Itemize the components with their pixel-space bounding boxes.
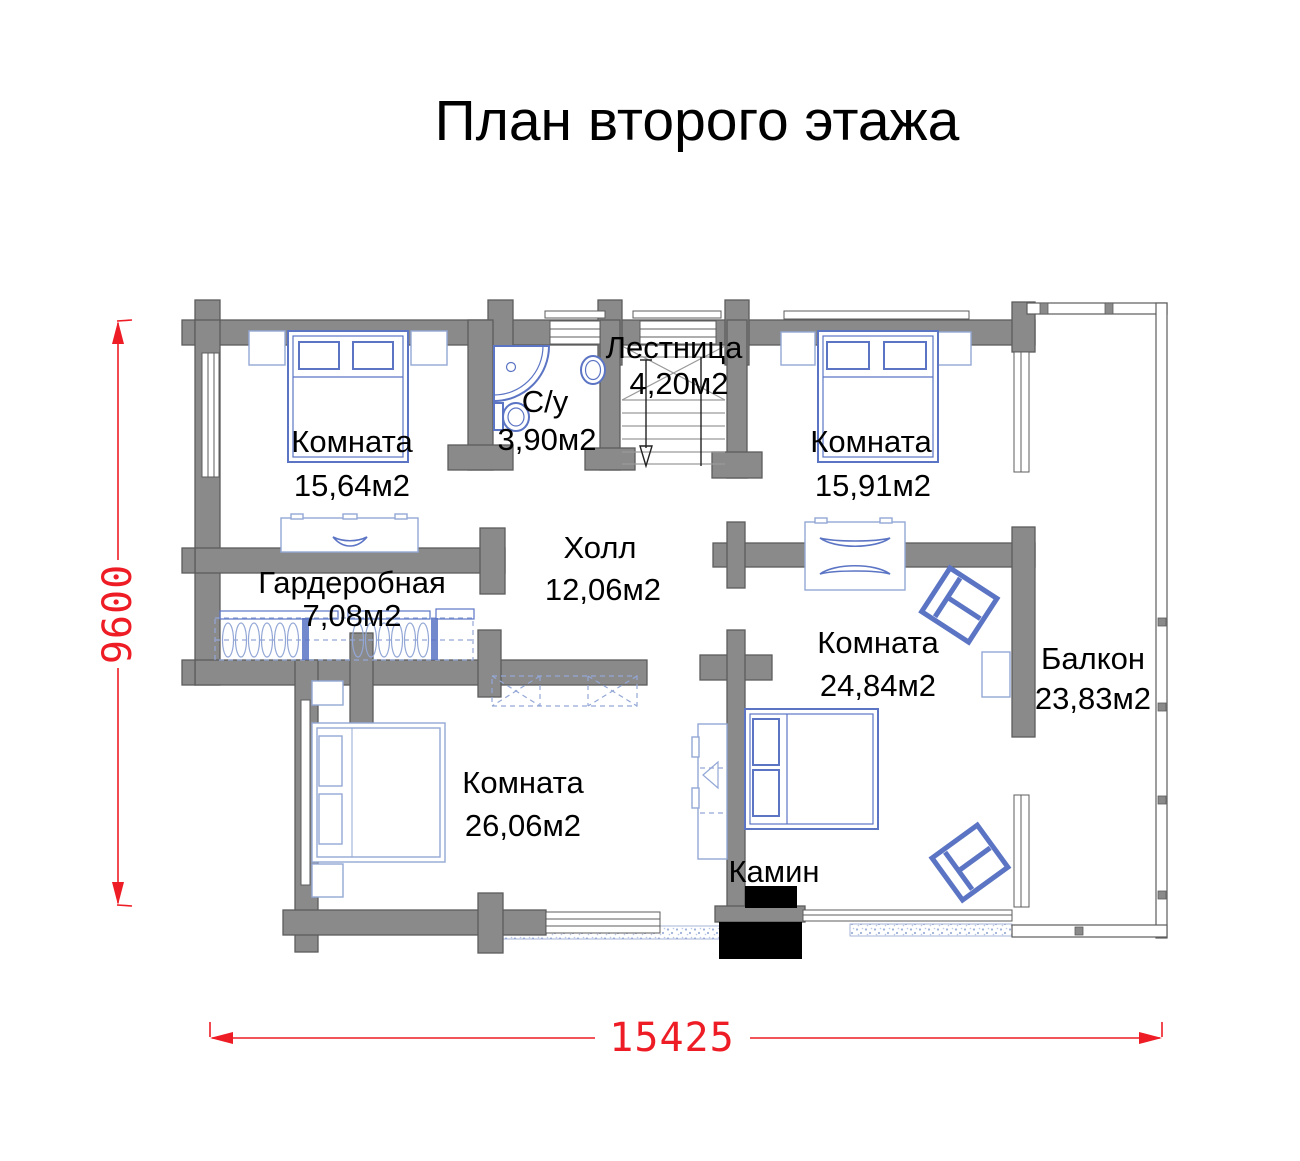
dresser-center-wall — [692, 724, 727, 859]
dimension-height: 9600 — [95, 564, 141, 664]
bed-room-bottom-left — [312, 681, 445, 897]
label-hall-name: Холл — [563, 530, 636, 565]
label-stairs-name: Лестница — [606, 330, 743, 365]
label-room-top-left-area: 15,64м2 — [294, 468, 410, 503]
wall-bottom — [283, 910, 546, 935]
pillow — [753, 770, 779, 816]
label-room-top-right-area: 15,91м2 — [815, 468, 931, 503]
label-room-bottom-left-name: Комната — [462, 765, 584, 800]
pillow — [319, 736, 342, 786]
label-stairs-area: 4,20м2 — [630, 366, 729, 401]
nightstand — [312, 864, 343, 897]
label-hall-area: 12,06м2 — [545, 572, 661, 607]
label-bathroom-name: С/у — [522, 384, 569, 419]
armchair-bottom — [932, 825, 1008, 900]
label-fireplace: Камин — [728, 854, 819, 889]
label-room-right-area: 24,84м2 — [820, 668, 936, 703]
dimension-horizontal: 15425 — [210, 1015, 1162, 1061]
window-room-bottom-left — [301, 700, 310, 885]
window-left — [202, 353, 219, 477]
label-bathroom-area: 3,90м2 — [498, 422, 597, 457]
window-top-1 — [550, 321, 600, 344]
side-table — [982, 652, 1010, 697]
tv-cabinet-room-right — [805, 518, 905, 590]
nightstand — [312, 681, 343, 705]
dimension-width: 15425 — [609, 1015, 734, 1061]
label-balcony-name: Балкон — [1041, 641, 1145, 676]
label-room-top-right-name: Комната — [810, 424, 932, 459]
floor-plan-page: Комната 15,64м2 С/у 3,90м2 Лестница 4,20… — [0, 0, 1300, 1161]
label-room-bottom-left-area: 26,06м2 — [465, 808, 581, 843]
window-bottom — [546, 912, 660, 933]
pillow — [353, 342, 393, 369]
label-wardrobe-name: Гардеробная — [258, 565, 446, 600]
dimension-vertical: 9600 — [95, 320, 141, 906]
label-balcony-area: 23,83м2 — [1035, 681, 1151, 716]
nightstand — [937, 332, 971, 365]
pillow — [319, 794, 342, 844]
pillow — [753, 719, 779, 765]
pillow — [827, 342, 869, 369]
window-sill-top-right — [784, 311, 969, 319]
nightstand — [781, 332, 815, 365]
dresser-room-top-left — [281, 514, 418, 552]
nightstand — [411, 331, 447, 365]
pillow — [884, 342, 926, 369]
bed-room-right — [745, 709, 878, 829]
pillow — [299, 342, 339, 369]
page-title: План второго этажа — [435, 89, 960, 153]
label-room-right-name: Комната — [817, 625, 939, 660]
stairs-down-arrow — [640, 446, 652, 466]
floor-plan-drawing: Комната 15,64м2 С/у 3,90м2 Лестница 4,20… — [0, 0, 1300, 1161]
label-wardrobe-area: 7,08м2 — [303, 598, 402, 633]
label-room-top-left-name: Комната — [291, 424, 413, 459]
nightstand — [249, 331, 285, 365]
